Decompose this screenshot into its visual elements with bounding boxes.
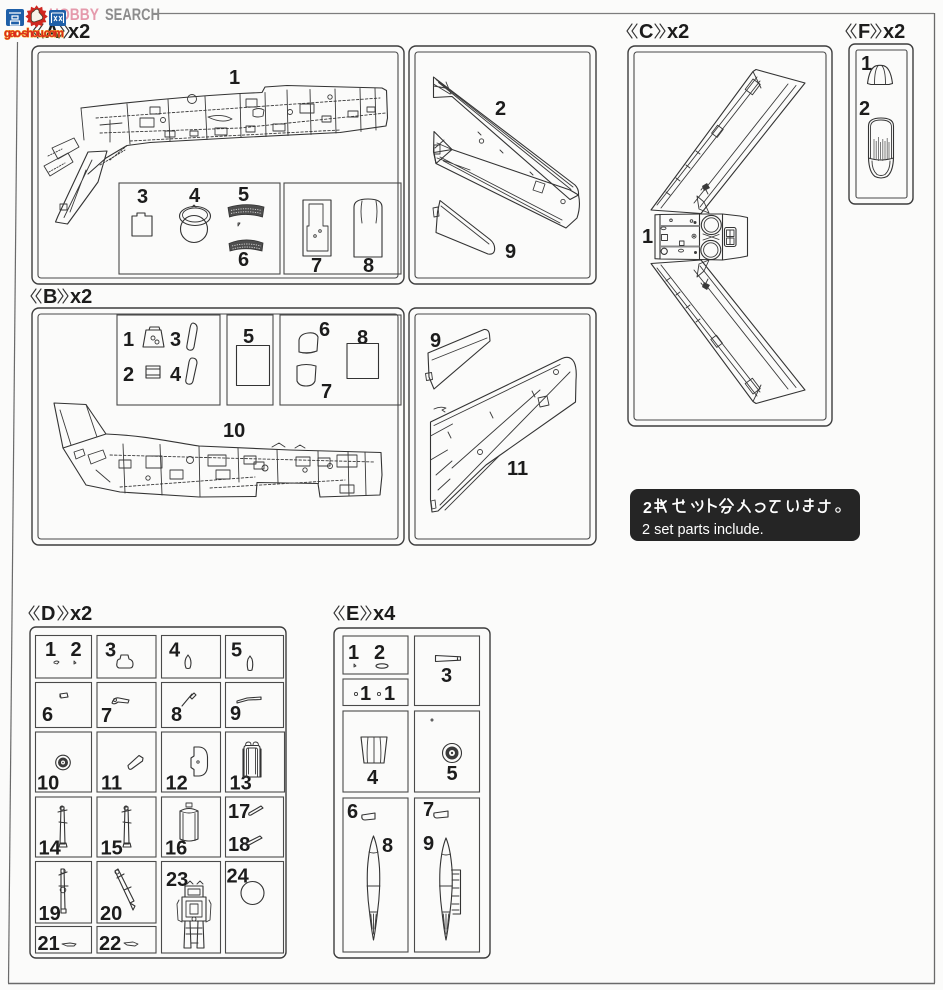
svg-text:10: 10 — [223, 420, 245, 442]
svg-text:7: 7 — [101, 705, 112, 727]
svg-text:19: 19 — [39, 903, 61, 925]
svg-text:14: 14 — [39, 838, 62, 860]
svg-text:1: 1 — [45, 639, 56, 661]
svg-text:3: 3 — [170, 329, 181, 351]
svg-text:17: 17 — [228, 801, 250, 823]
svg-text:2: 2 — [374, 642, 385, 664]
svg-text:4: 4 — [169, 640, 181, 662]
svg-text:12: 12 — [166, 773, 188, 795]
svg-text:24: 24 — [227, 866, 250, 888]
svg-text:15: 15 — [101, 838, 123, 860]
svg-text:13: 13 — [230, 773, 252, 795]
svg-text:2: 2 — [71, 639, 82, 661]
svg-text:1: 1 — [123, 329, 134, 351]
svg-text:2: 2 — [123, 364, 134, 386]
svg-text:1: 1 — [360, 683, 371, 705]
svg-text:21: 21 — [38, 933, 60, 955]
svg-text:2: 2 — [643, 500, 652, 517]
svg-text:C: C — [639, 21, 653, 43]
svg-text:B: B — [43, 286, 57, 308]
svg-text:22: 22 — [99, 933, 121, 955]
svg-text:4: 4 — [170, 364, 182, 386]
svg-text:5: 5 — [447, 763, 458, 785]
svg-text:11: 11 — [101, 773, 122, 795]
svg-text:2: 2 — [859, 98, 870, 120]
svg-text:2 set parts include.: 2 set parts include. — [642, 522, 764, 538]
svg-text:9: 9 — [505, 241, 516, 263]
svg-text:3: 3 — [105, 640, 116, 662]
svg-text:x2: x2 — [883, 21, 905, 43]
svg-text:20: 20 — [100, 903, 122, 925]
svg-text:1: 1 — [384, 683, 395, 705]
svg-text:gao-shou.com: gao-shou.com — [4, 28, 64, 40]
svg-text:6: 6 — [238, 249, 249, 271]
svg-text:x2: x2 — [70, 603, 92, 625]
svg-text:F: F — [858, 21, 870, 43]
svg-text:7: 7 — [423, 799, 434, 821]
svg-text:E: E — [346, 603, 359, 625]
svg-text:6: 6 — [347, 801, 358, 823]
svg-text:5: 5 — [231, 640, 242, 662]
svg-text:D: D — [41, 603, 55, 625]
svg-text:5: 5 — [243, 326, 254, 348]
svg-text:11: 11 — [507, 458, 528, 480]
svg-text:x2: x2 — [70, 286, 92, 308]
svg-text:6: 6 — [42, 704, 53, 726]
svg-text:10: 10 — [37, 773, 59, 795]
svg-text:x2: x2 — [667, 21, 689, 43]
svg-text:x4: x4 — [373, 603, 396, 625]
svg-text:x2: x2 — [68, 21, 90, 43]
svg-text:SEARCH: SEARCH — [105, 6, 160, 24]
svg-text:8: 8 — [357, 327, 368, 349]
svg-text:1: 1 — [229, 67, 240, 89]
svg-text:7: 7 — [311, 255, 322, 277]
svg-text:3: 3 — [137, 186, 148, 208]
svg-text:5: 5 — [238, 184, 249, 206]
svg-text:8: 8 — [382, 835, 393, 857]
svg-text:4: 4 — [189, 185, 201, 207]
svg-text:9: 9 — [230, 703, 241, 725]
svg-text:4: 4 — [367, 767, 379, 789]
svg-text:7: 7 — [321, 381, 332, 403]
svg-text:1: 1 — [642, 226, 653, 248]
svg-text:3: 3 — [441, 665, 452, 687]
svg-text:9: 9 — [423, 833, 434, 855]
svg-text:2: 2 — [495, 98, 506, 120]
svg-text:6: 6 — [319, 319, 330, 341]
svg-text:1: 1 — [348, 642, 359, 664]
svg-text:8: 8 — [363, 255, 374, 277]
svg-text:8: 8 — [171, 704, 182, 726]
